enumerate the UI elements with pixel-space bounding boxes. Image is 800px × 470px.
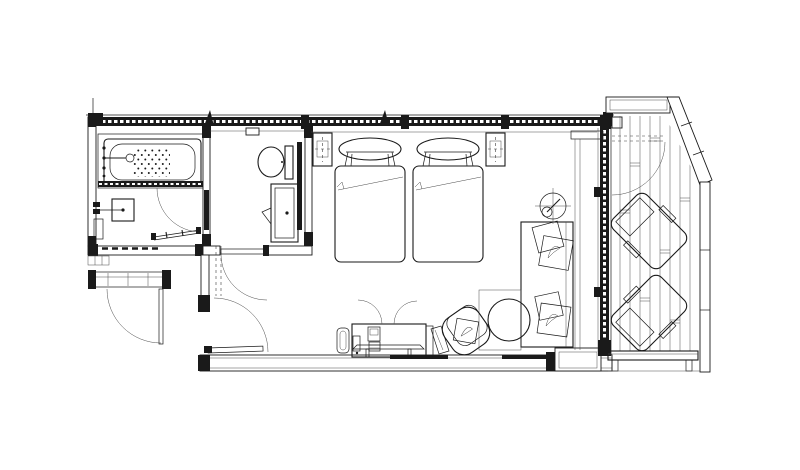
wall-cap-detail [88,256,109,265]
exterior-wall-north [86,98,614,129]
balcony [605,97,712,372]
twin-bed-2 [413,138,483,262]
floor-plan-canvas: Hotel twin guest room floor plan with ba… [0,0,800,470]
toilet-room [210,126,313,246]
wall-toilet-east [304,126,313,246]
armchair [437,302,495,360]
vestibule-east-wall [198,246,221,312]
toilet-room-door [221,249,267,300]
pillow-1 [339,138,401,160]
sofa-cushion-bottom [535,292,571,337]
desk-shelf [353,345,424,349]
toilet [258,146,293,179]
cabinet-door-arc-left [358,300,382,324]
bathtub [104,139,201,185]
nightstand-left [313,133,332,166]
desk-cabinet [352,300,433,357]
wall-bathroom-south [88,244,204,265]
mullion [594,187,601,197]
bath-faucet [102,146,134,177]
twin-bed-1 [335,138,405,262]
shower-head [93,199,134,221]
lounge-chair-2 [605,269,693,357]
mirror [297,142,302,230]
wall-toilet-south [203,245,312,256]
closet-door [107,289,163,344]
vanity-sink [262,184,298,242]
floor-lamp [535,188,571,224]
ceiling-vent [246,128,259,135]
partition-wall-bathroom [202,126,211,246]
round-side-table [488,299,530,341]
pillow-2 [417,138,479,160]
anti-slip-dots [133,147,170,177]
mullion [594,287,601,297]
stool [337,328,349,353]
bathroom [93,134,205,240]
armchair-cushion [453,318,478,343]
nightstand-right [486,133,505,166]
floor-plan-drawing: Hotel twin guest room floor plan with ba… [0,0,800,470]
shower-glass-door [151,188,201,240]
sofa-cushion-top [532,221,573,270]
lounge-chair-1 [605,187,693,275]
entry-closet [88,270,171,289]
rug-platform [479,290,521,350]
balcony-bench [608,351,700,371]
wall-niche [555,348,601,371]
pocket-door-panel [204,190,209,230]
window-wall-east [571,115,622,356]
cabinet-door-arc-right [394,301,417,324]
exterior-wall-west [88,117,96,246]
entry-door [204,298,268,353]
